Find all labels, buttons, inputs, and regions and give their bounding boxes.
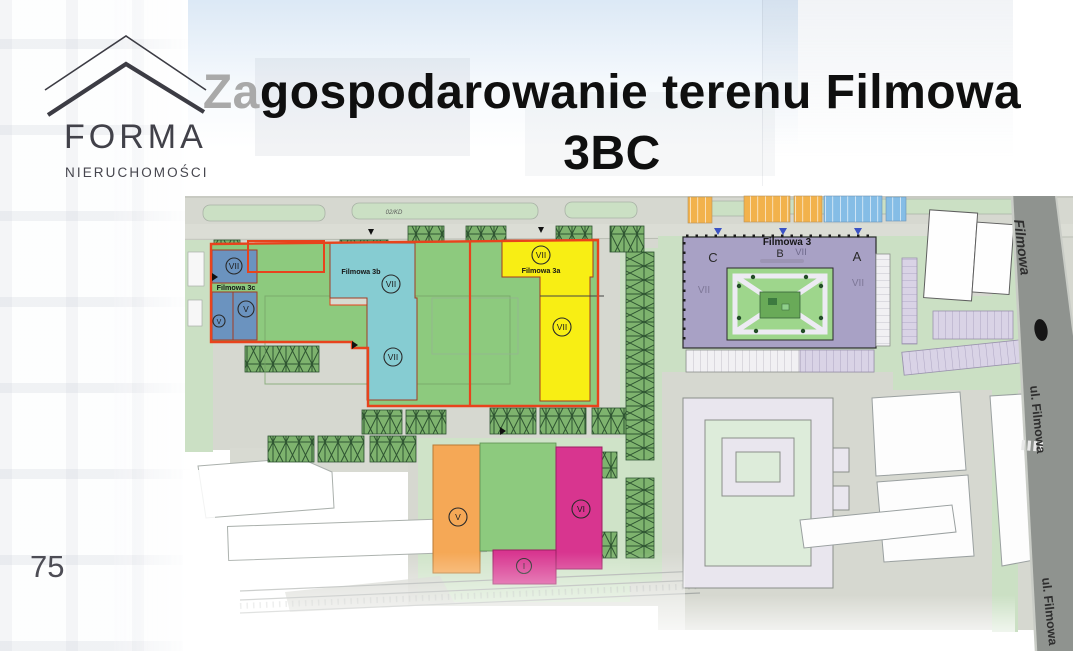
svg-text:VII: VII [386,279,396,289]
parking-band-filmowa3-lavender [800,350,874,372]
presentation-slide: FORMA NIERUCHOMOŚCI Zagospodarowanie ter… [0,0,1073,651]
label-filmowa-3b: Filmowa 3b [341,267,381,276]
svg-text:V: V [243,304,249,314]
site-plan-map: 02/KD [0,0,1073,651]
label-wing-a: A [853,249,862,264]
parking-row-orange [688,196,822,223]
svg-text:VII: VII [388,352,398,362]
svg-text:V: V [217,319,222,326]
parking-row-blue [824,196,906,222]
playground [760,292,800,318]
label-filmowa-3c: Filmowa 3c [217,283,256,292]
label-storeys-b: VII [795,247,807,258]
parking-column-east [876,254,890,346]
fine-print-smudge [760,259,804,263]
pale-building-complex [683,398,849,588]
label-wing-c: C [708,250,717,265]
parking-column-lavender [902,258,917,344]
road-code-label: 02/KD [386,210,403,216]
svg-text:VII: VII [229,261,239,271]
svg-text:VII: VII [536,250,546,260]
white-buildings-northeast [924,210,1015,304]
label-filmowa-3a: Filmowa 3a [522,266,562,275]
svg-text:V: V [455,512,461,522]
label-storeys-c: VII [698,285,710,296]
south-lawn [480,443,556,551]
svg-text:VII: VII [557,322,567,332]
label-wing-b: B [776,248,783,260]
label-storeys-a: VII [852,278,864,289]
svg-text:VI: VI [577,504,585,514]
parking-cluster-lavender-1 [933,311,1013,339]
